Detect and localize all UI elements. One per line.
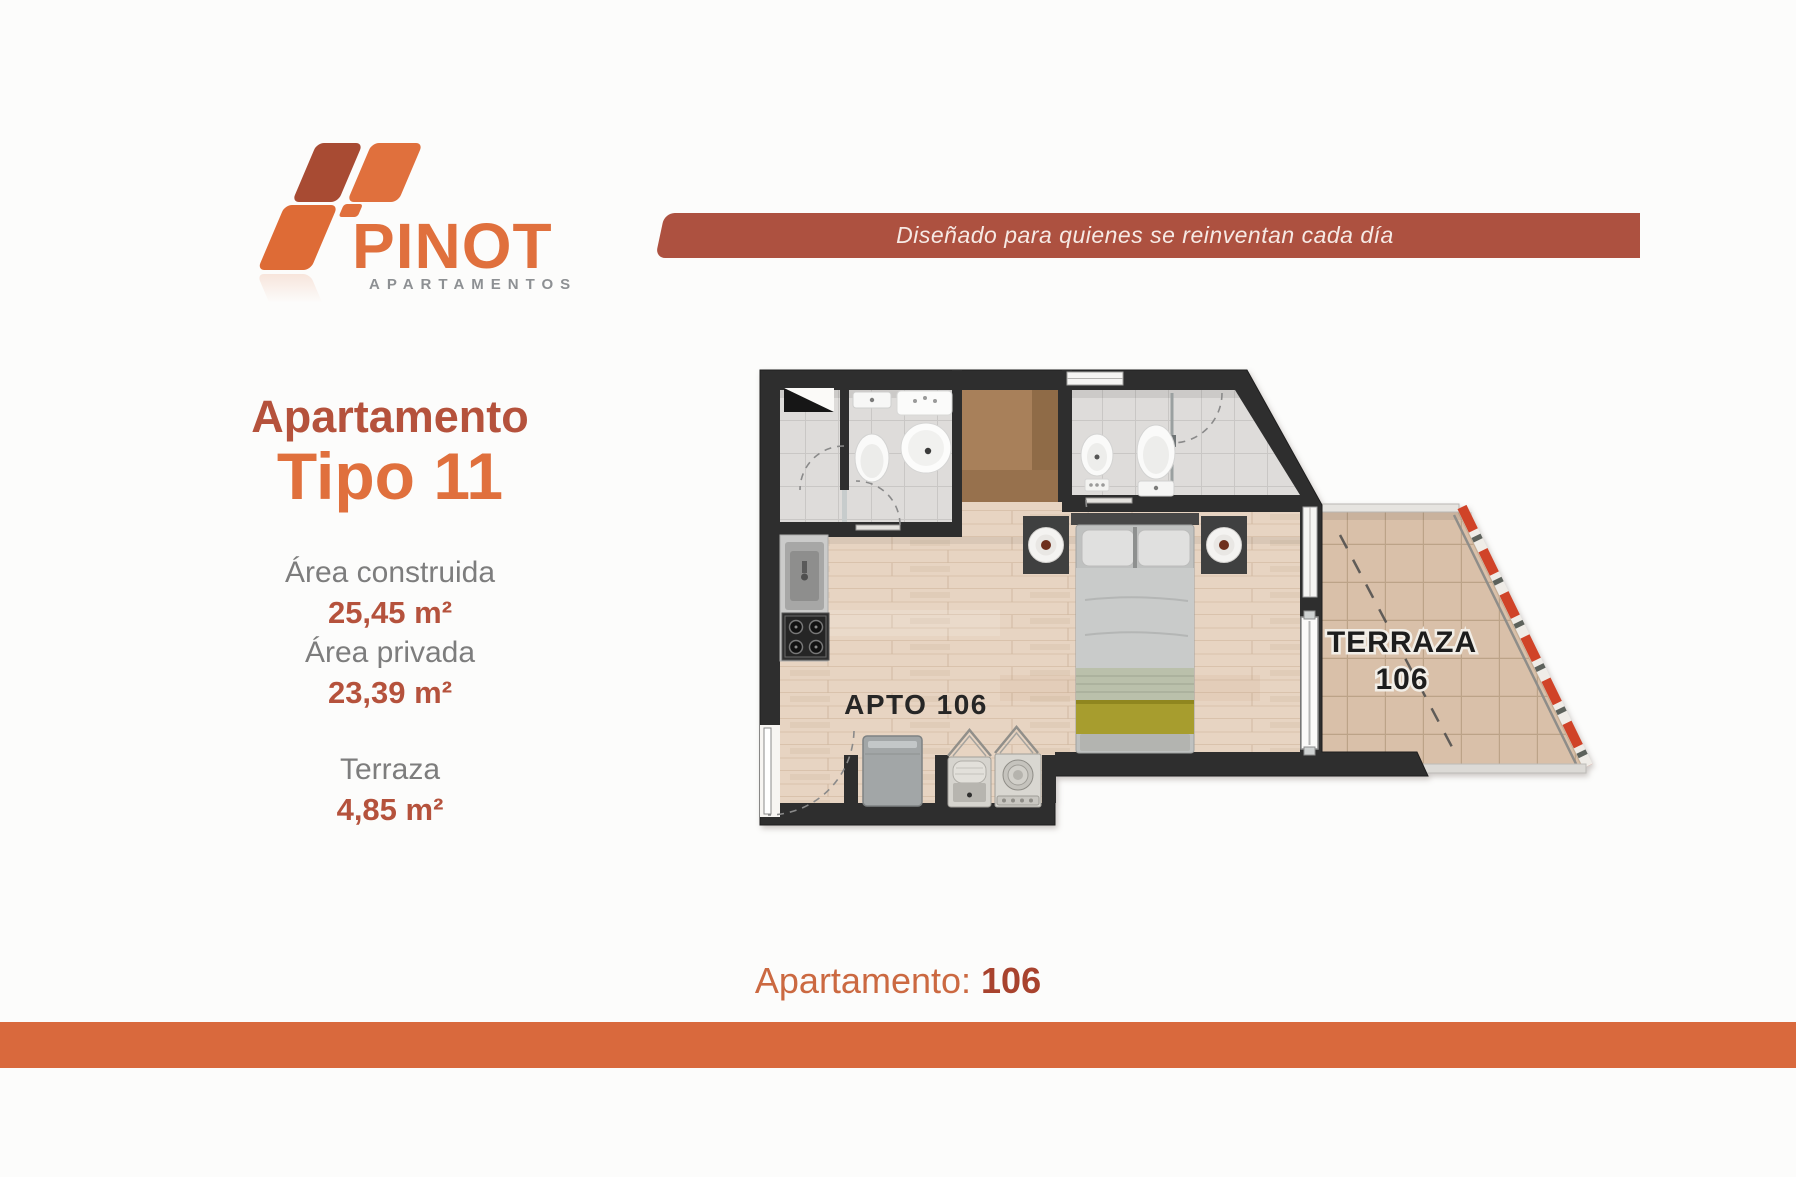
terrace: TERRAZA 106 bbox=[1322, 504, 1588, 773]
logo-name: PINOT bbox=[352, 214, 553, 278]
logo-subtitle: APARTAMENTOS bbox=[369, 277, 577, 292]
tagline-banner: Diseñado para quienes se reinventan cada… bbox=[650, 213, 1640, 258]
footer-caption: Apartamento: 106 bbox=[0, 960, 1796, 1002]
footer-apartment-number: 106 bbox=[981, 960, 1041, 1001]
kitchen bbox=[780, 535, 829, 661]
floor-plan-drawing: TERRAZA 106 bbox=[740, 355, 1620, 845]
terrace-value: 4,85 m² bbox=[188, 790, 592, 830]
apartment-type: Tipo 11 bbox=[188, 443, 592, 509]
floor-plan: TERRAZA 106 bbox=[740, 355, 1620, 845]
logo-mark-icon bbox=[257, 205, 338, 270]
bed bbox=[1071, 513, 1199, 753]
area-built-label: Área construida bbox=[188, 553, 592, 593]
info-panel: Apartamento Tipo 11 Área construida 25,4… bbox=[188, 394, 592, 830]
footer-apartment-label: Apartamento: bbox=[755, 960, 971, 1001]
terrace-block: Terraza 4,85 m² bbox=[188, 750, 592, 830]
area-built-value: 25,45 m² bbox=[188, 593, 592, 633]
apartment-floor-label: APTO 106 bbox=[844, 689, 988, 720]
flyer-canvas: PINOT APARTAMENTOS Diseñado para quienes… bbox=[0, 0, 1796, 1177]
terrace-floor-label-line1: TERRAZA bbox=[1327, 626, 1477, 659]
bottom-bar bbox=[0, 1022, 1796, 1068]
fridge bbox=[863, 736, 922, 806]
terrace-label: Terraza bbox=[188, 750, 592, 790]
bathroom1-niche bbox=[784, 388, 834, 412]
areas-block: Área construida 25,45 m² Área privada 23… bbox=[188, 553, 592, 713]
apartment-title: Apartamento bbox=[188, 394, 592, 441]
logo-reflection bbox=[257, 274, 324, 308]
area-private-value: 23,39 m² bbox=[188, 673, 592, 713]
area-private-label: Área privada bbox=[188, 633, 592, 673]
terrace-floor-label-line2: 106 bbox=[1375, 663, 1428, 696]
tagline-text: Diseñado para quienes se reinventan cada… bbox=[650, 213, 1640, 258]
